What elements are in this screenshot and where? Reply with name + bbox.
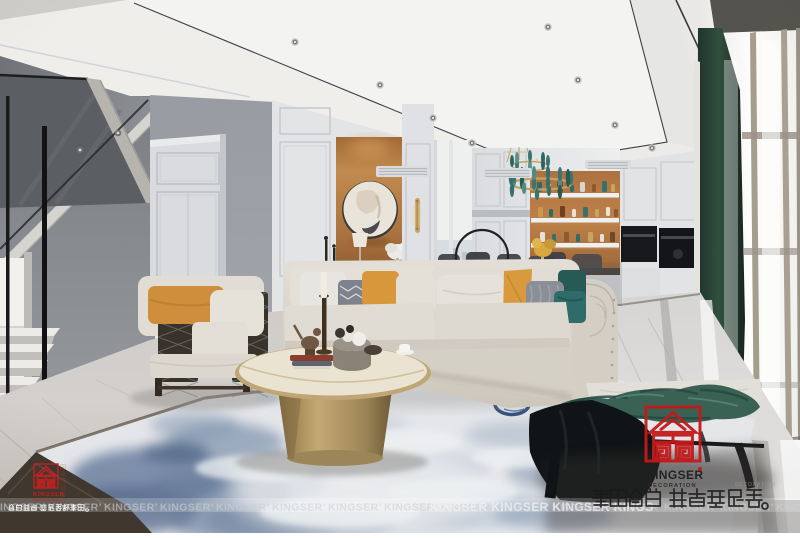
svg-text:KINGSER’: KINGSER’ [328,502,382,514]
svg-text:DECORATION: DECORATION [34,498,59,502]
svg-text:DECORATION: DECORATION [735,482,776,488]
svg-text:KINGSER KINGSER KINGSER KINGS: KINGSER KINGSER KINGSER KINGS [430,500,654,514]
svg-text:KINGSER’: KINGSER’ [104,502,158,514]
svg-text:KINGSER’: KINGSER’ [776,502,800,514]
svg-text:KINGSER’: KINGSER’ [216,502,270,514]
svg-text:KINGSER’: KINGSER’ [160,502,214,514]
svg-text:KINGSER: KINGSER [646,468,703,482]
svg-text:DECORATION: DECORATION [648,483,697,489]
svg-text:KINGSER’: KINGSER’ [272,502,326,514]
svg-text:KINGSER’: KINGSER’ [0,502,46,514]
